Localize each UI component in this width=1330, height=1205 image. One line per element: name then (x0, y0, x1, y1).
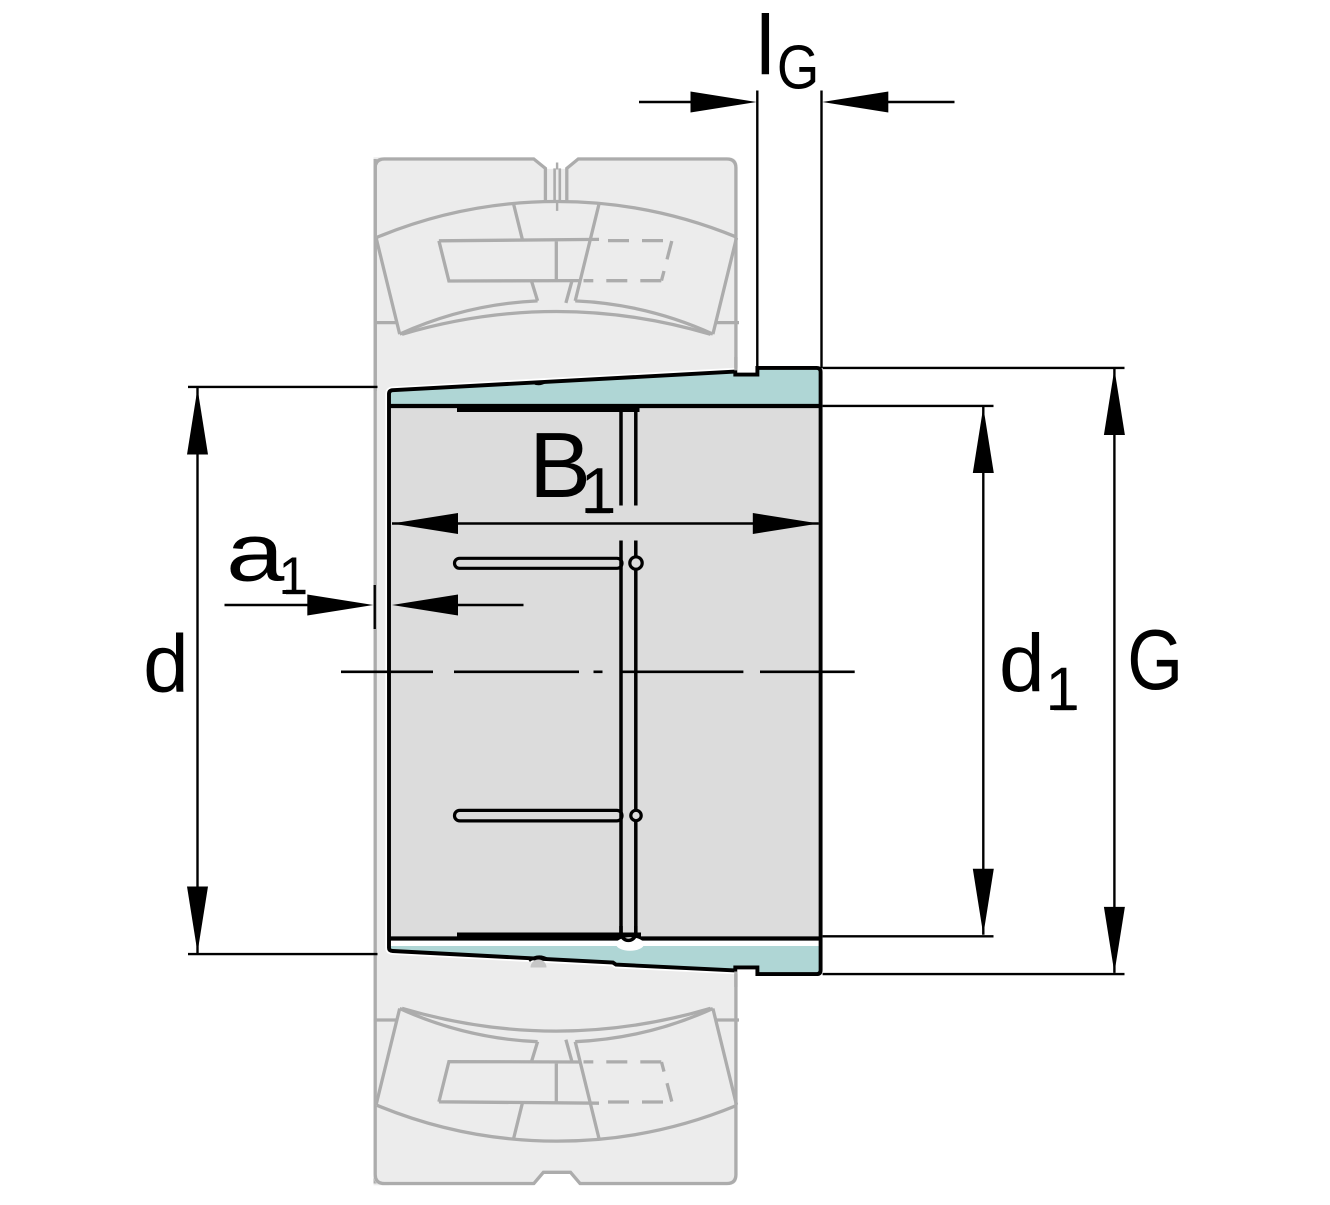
svg-text:1: 1 (1046, 655, 1080, 724)
svg-text:1: 1 (279, 547, 308, 606)
svg-text:d: d (999, 618, 1045, 709)
svg-text:1: 1 (581, 455, 617, 527)
svg-text:G: G (1127, 612, 1183, 707)
svg-text:l: l (756, 0, 775, 92)
svg-text:d: d (143, 619, 189, 710)
svg-text:G: G (777, 33, 819, 102)
svg-text:a: a (226, 506, 285, 597)
